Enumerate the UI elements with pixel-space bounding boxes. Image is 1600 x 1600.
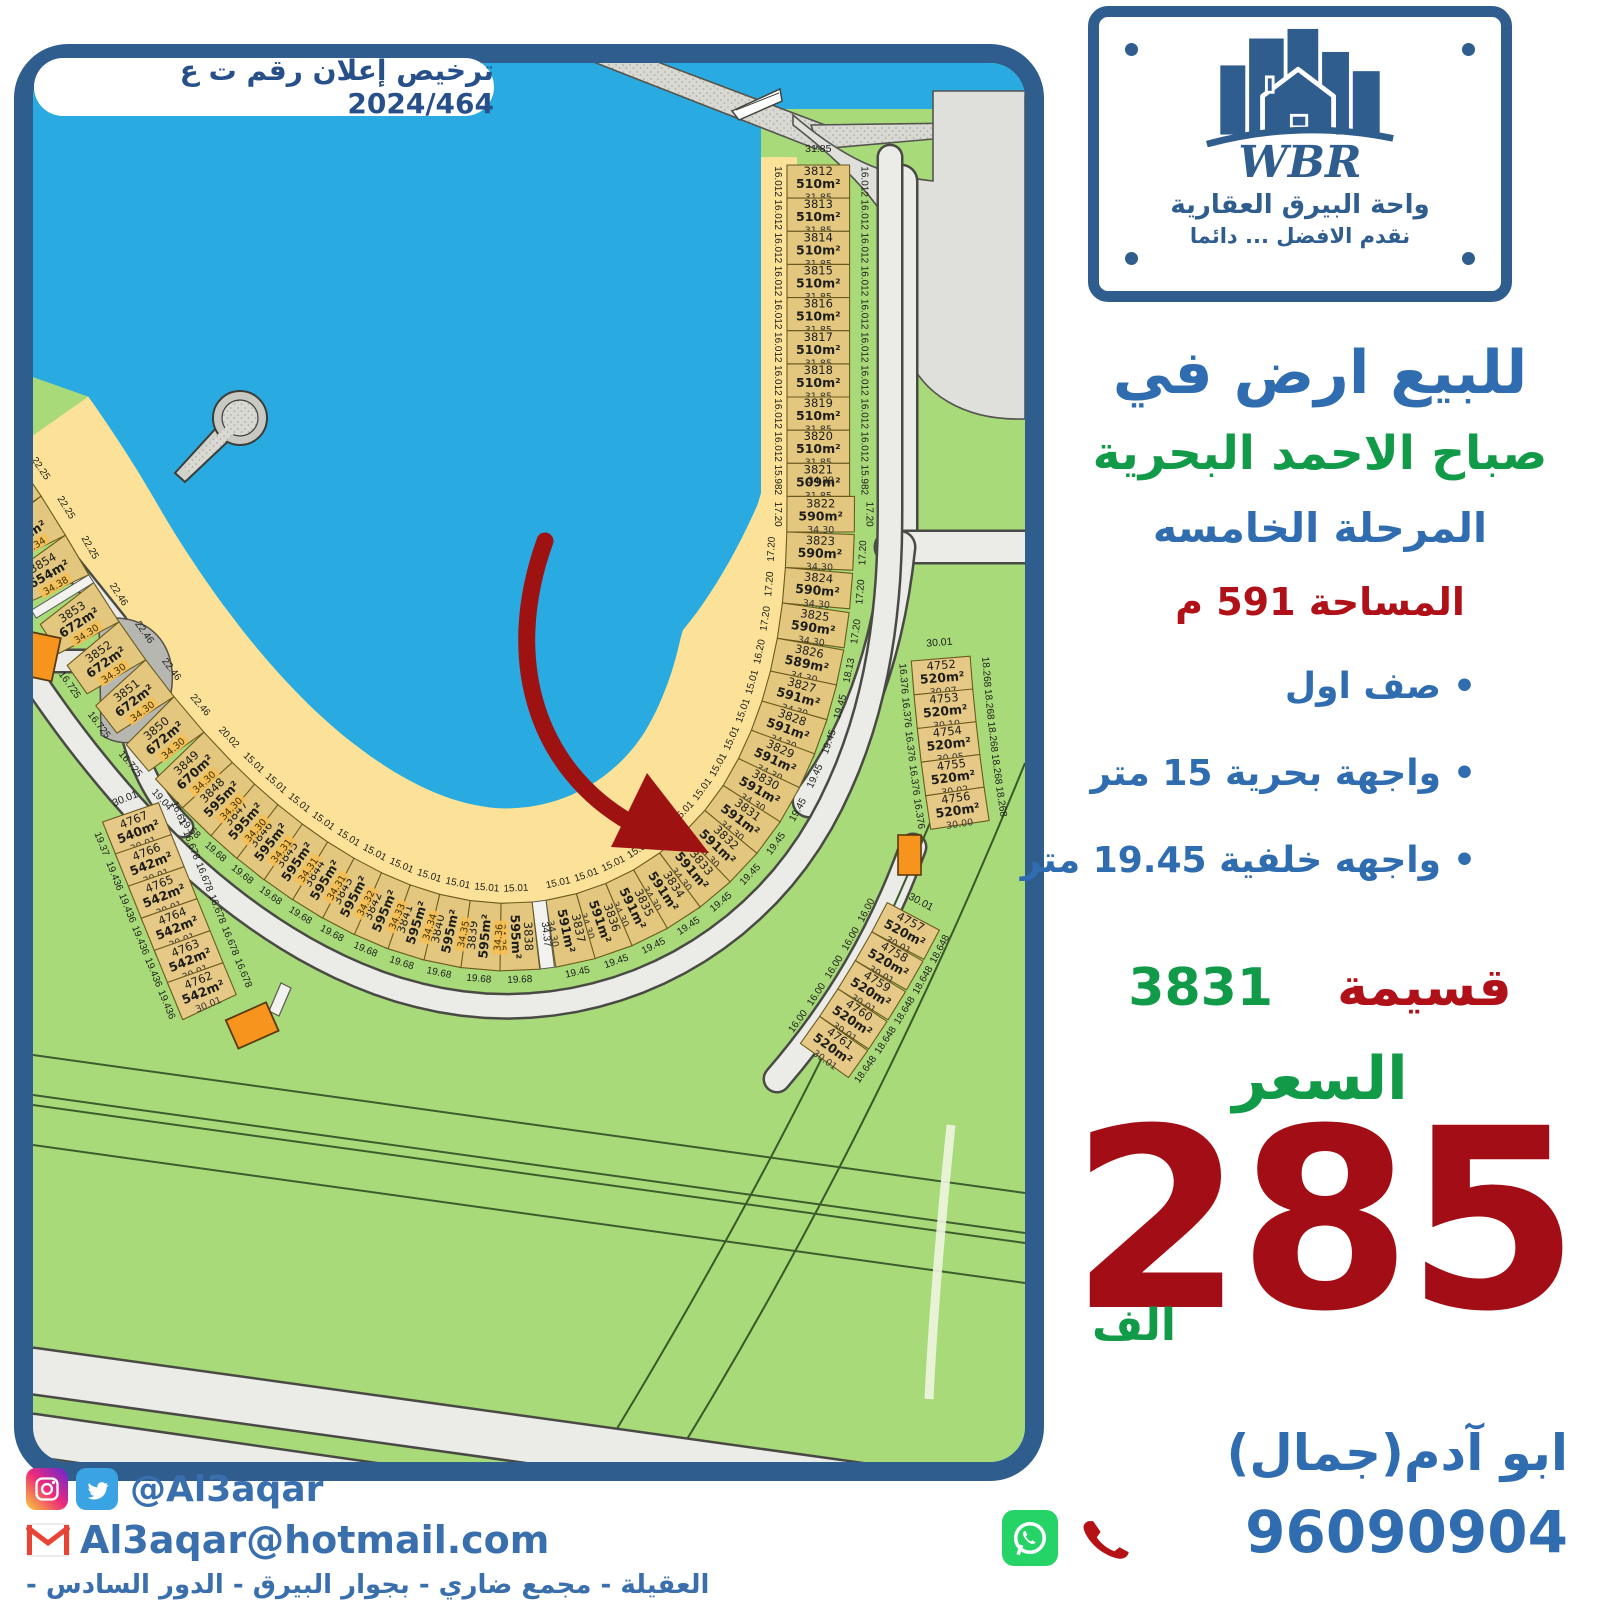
logo-company-name: واحة البيرق العقارية <box>1099 190 1501 220</box>
bullet-icon: • <box>1453 753 1476 794</box>
site-map: 3812510m²31.8516.01216.01231.853813510m²… <box>33 63 1025 1462</box>
poster: 3812510m²31.8516.01216.01231.853813510m²… <box>0 0 1600 1600</box>
plaque-dot-icon <box>1462 43 1475 56</box>
feature-list: •صف اول •واجهة بحرية 15 متر •واجهه خلفية… <box>1090 666 1476 927</box>
gmail-icon <box>26 1523 70 1557</box>
bullet-icon: • <box>1453 840 1476 881</box>
plot-text: 510m² <box>796 242 841 257</box>
headline-sale: للبيع ارض في <box>1070 338 1570 408</box>
dim-label: 16.012 <box>859 199 870 230</box>
dim-label: 19.68 <box>466 973 492 986</box>
headline-phase: المرحلة الخامسه <box>1070 504 1570 552</box>
parcel-row: قسيمة 3831 <box>1070 958 1570 1018</box>
dim-label: 17.20 <box>854 579 867 605</box>
parcel-label: قسيمة <box>1337 958 1512 1018</box>
dim-label: 16.012 <box>859 431 870 462</box>
plot-text: 510m² <box>796 309 841 324</box>
dim-label: 30.01 <box>926 636 953 650</box>
bullet-icon: • <box>1453 666 1476 707</box>
logo-wbr-text: WBR <box>1099 137 1501 188</box>
dim-label: 16.012 <box>772 233 783 264</box>
company-logo: WBR واحة البيرق العقارية نقدم الافضل ...… <box>1088 6 1512 302</box>
site-map-panel: 3812510m²31.8516.01216.01231.853813510m²… <box>14 44 1044 1481</box>
dim-label: 17.20 <box>766 536 778 562</box>
dim-label: 17.20 <box>864 502 875 527</box>
dim-label: 31.85 <box>805 143 831 155</box>
plaque-dot-icon <box>1462 252 1475 265</box>
plot-text: 590m² <box>798 509 843 524</box>
dim-label: 16.012 <box>772 365 783 396</box>
plaque-dot-icon <box>1125 43 1138 56</box>
phone-icon <box>1080 1514 1132 1566</box>
dim-label: 16.012 <box>772 299 783 330</box>
dim-label: 16.012 <box>772 266 783 297</box>
dim-label: 17.20 <box>772 502 783 527</box>
agent-phone: 96090904 <box>1150 1498 1568 1566</box>
agent-name: ابو آدم(جمال) <box>1090 1424 1568 1482</box>
twitter-icon <box>76 1468 118 1510</box>
dim-label: 16.012 <box>859 398 870 429</box>
social-handle: @Al3aqar <box>130 1469 323 1510</box>
dim-label: 15.982 <box>772 465 783 496</box>
footer-contact: @Al3aqar Al3aqar@hotmail.com العقيلة - م… <box>26 1468 786 1600</box>
instagram-icon <box>26 1468 68 1510</box>
plot-text: 510m² <box>796 176 841 191</box>
dim-label: 16.012 <box>859 299 870 330</box>
marker-orange <box>898 835 921 875</box>
plot-text: 510m² <box>796 209 841 224</box>
plot-text: 510m² <box>796 408 841 423</box>
plot-text: 510m² <box>796 276 841 291</box>
dim-label: 19.68 <box>507 974 533 986</box>
dim-label: 15.01 <box>474 881 500 894</box>
plot-text: 510m² <box>796 375 841 390</box>
dim-label: 16.012 <box>772 398 783 429</box>
dim-label: 16.012 <box>772 199 783 230</box>
dim-label: 15.982 <box>859 465 870 496</box>
plaque-dot-icon <box>1125 252 1138 265</box>
dim-label: 17.20 <box>857 540 869 566</box>
dim-label: 16.012 <box>859 332 870 363</box>
whatsapp-icon <box>1002 1510 1058 1566</box>
plot-text: 510m² <box>796 342 841 357</box>
plot-text: 590m² <box>797 545 842 562</box>
plot-text: 510m² <box>796 441 841 456</box>
dim-label: 16.012 <box>772 166 783 197</box>
skyline-house-icon <box>1195 27 1405 147</box>
dim-label: 16.012 <box>859 365 870 396</box>
dim-label: 16.012 <box>859 233 870 264</box>
feature-item: •واجهة بحرية 15 متر <box>1090 753 1476 794</box>
email-address: Al3aqar@hotmail.com <box>80 1518 549 1562</box>
license-badge: ترخيص إعلان رقم ت ع 2024/464 <box>34 58 494 116</box>
price-unit: الف <box>1092 1300 1176 1351</box>
office-address: العقيلة - مجمع ضاري - بجوار البيرق - الد… <box>26 1570 786 1600</box>
dim-label: 16.012 <box>859 166 870 197</box>
feature-item: •صف اول <box>1090 666 1476 707</box>
license-text: ترخيص إعلان رقم ت ع 2024/464 <box>34 54 494 120</box>
dim-label: 34.30 <box>808 474 834 486</box>
dim-label: 16.012 <box>772 431 783 462</box>
parcel-number: 3831 <box>1128 958 1273 1018</box>
feature-item: •واجهه خلفية 19.45 متر <box>1090 840 1476 881</box>
logo-slogan: نقدم الافضل ... دائما <box>1099 224 1501 248</box>
plot-text: 595m² <box>508 914 525 959</box>
headline-location: صباح الاحمد البحرية <box>1070 426 1570 481</box>
headline-area: المساحة 591 م <box>1070 580 1570 624</box>
dim-label: 17.20 <box>763 571 776 597</box>
dim-label: 15.01 <box>503 883 529 895</box>
dim-label: 16.012 <box>772 332 783 363</box>
dim-label: 16.012 <box>859 266 870 297</box>
